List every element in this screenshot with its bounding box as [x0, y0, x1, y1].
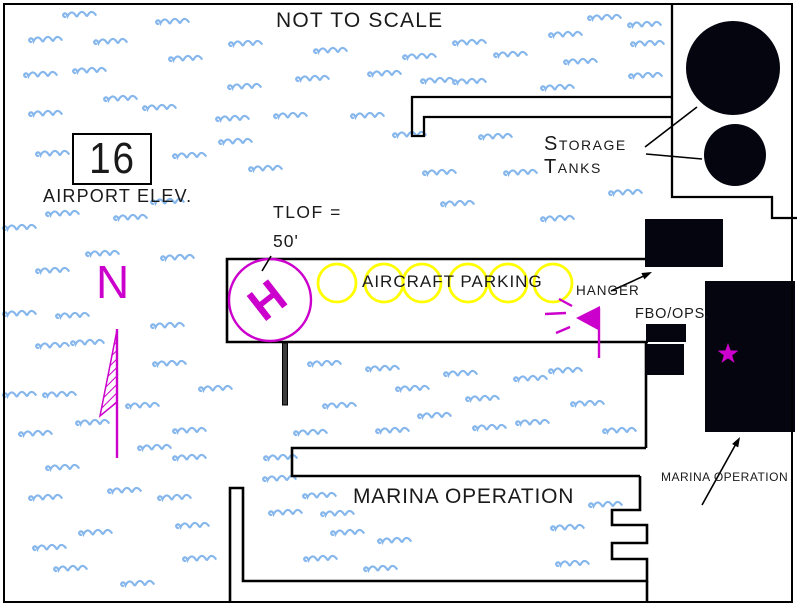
wave-icon	[216, 116, 249, 121]
wave-icon	[403, 54, 436, 59]
airport-elevation-box: 16	[72, 133, 152, 185]
wave-icon	[294, 430, 327, 435]
wave-icon	[603, 428, 636, 433]
wave-icon	[514, 376, 547, 381]
wave-icon	[73, 68, 106, 73]
wave-icon	[274, 113, 307, 118]
pier-piling-post	[283, 343, 288, 405]
wave-icon	[588, 15, 621, 20]
wave-icon	[19, 431, 52, 436]
wave-icon	[364, 566, 397, 571]
north-arrow	[100, 329, 117, 458]
heliport-site-diagram: { "title": "NOT TO SCALE", "airport": { …	[0, 0, 800, 610]
wave-icon	[323, 403, 356, 408]
wave-icon	[138, 445, 171, 450]
wave-icon	[126, 403, 159, 408]
wave-icon	[444, 371, 477, 376]
storage-tank-small	[704, 124, 766, 186]
wave-icon	[219, 139, 252, 144]
marina-arrowhead	[732, 437, 740, 447]
wave-icon	[453, 40, 486, 45]
wave-icon	[156, 19, 189, 24]
wave-icon	[504, 170, 537, 175]
wave-icon	[541, 85, 574, 90]
wave-icon	[108, 488, 141, 493]
wave-icon	[46, 465, 79, 470]
wave-icon	[229, 41, 262, 46]
wave-icon	[564, 59, 597, 64]
wave-icon	[29, 37, 62, 42]
wave-icon	[76, 420, 109, 425]
wave-icon	[173, 455, 206, 460]
wave-icon	[331, 530, 364, 535]
wave-icon	[46, 211, 79, 216]
wave-icon	[479, 134, 512, 139]
marina-operation-building	[705, 281, 795, 432]
wave-icon	[173, 428, 206, 433]
wave-icon	[571, 401, 604, 406]
wave-icon	[29, 495, 62, 500]
wave-icon	[494, 52, 527, 57]
wave-icon	[376, 428, 409, 433]
wave-icon	[36, 151, 69, 156]
wave-icon	[556, 561, 589, 566]
wave-icon	[79, 530, 112, 535]
wave-icon	[366, 366, 399, 371]
wave-icon	[631, 41, 664, 46]
wave-icon	[29, 111, 62, 116]
wave-icon	[453, 79, 486, 84]
tlof-label-line2: 50'	[273, 231, 299, 251]
wave-icon	[173, 153, 206, 158]
wave-icon	[549, 32, 582, 37]
marina-operation-label: MARINA OPERATION	[353, 485, 574, 509]
hanger-arrowhead	[641, 272, 652, 279]
wave-icon	[551, 525, 584, 530]
airport-elevation-value: 16	[89, 134, 136, 185]
hanger-label: HANGER	[576, 283, 640, 299]
wave-icon	[3, 225, 36, 230]
storage-label-line1: Storage	[544, 133, 627, 156]
wave-icon	[228, 84, 261, 89]
wave-icon	[396, 386, 429, 391]
wave-icon	[161, 255, 194, 260]
wave-icon	[114, 215, 147, 220]
storage-leader-small	[646, 154, 702, 159]
wave-icon	[421, 78, 454, 83]
wave-icon	[43, 392, 76, 397]
wave-icon	[151, 323, 184, 328]
tlof-label-line1: TLOF =	[273, 202, 342, 222]
jetty-breakwater	[412, 97, 673, 136]
fbo-ops-label: FBO/OPS.	[635, 306, 710, 323]
fbo-building-lower	[646, 344, 684, 375]
wave-icon	[304, 556, 337, 561]
wave-icon	[609, 190, 642, 195]
wave-icon	[143, 105, 176, 110]
wave-icon	[169, 56, 202, 61]
wave-icon	[589, 502, 622, 507]
wave-icon	[3, 311, 36, 316]
wave-icon	[628, 22, 661, 27]
wave-icon	[351, 113, 384, 118]
wave-icon	[94, 39, 127, 44]
wave-icon	[368, 71, 401, 76]
storage-label-line2: Tanks	[544, 156, 627, 179]
wave-icon	[121, 581, 154, 586]
marina-building-label: MARINA OPERATION	[661, 471, 788, 485]
fbo-building-upper	[646, 324, 686, 342]
wave-icon	[629, 73, 662, 78]
hanger-building	[645, 219, 723, 267]
wave-icon	[303, 493, 336, 498]
wave-icon	[199, 386, 232, 391]
wave-icon	[321, 511, 354, 516]
wave-icon	[71, 340, 104, 345]
wave-icon	[269, 510, 302, 515]
wave-icon	[418, 413, 451, 418]
wave-icon	[158, 495, 191, 500]
wave-icon	[423, 170, 456, 175]
wave-icon	[63, 12, 96, 17]
wave-icon	[541, 216, 574, 221]
wave-icon	[36, 343, 69, 348]
wave-icon	[473, 425, 506, 430]
marina-pier-bar	[292, 448, 646, 476]
wave-icon	[441, 201, 474, 206]
wave-icon	[54, 566, 87, 571]
wave-icon	[308, 361, 341, 366]
storage-tanks-label: Storage Tanks	[544, 133, 627, 179]
wave-icon	[314, 48, 347, 53]
title-not-to-scale: NOT TO SCALE	[276, 9, 443, 33]
windsock-icon	[545, 299, 600, 358]
wave-icon	[378, 538, 411, 543]
wave-icon	[24, 72, 57, 77]
airport-elev-label: AIRPORT ELEV.	[43, 186, 192, 207]
wave-icon	[549, 368, 582, 373]
aircraft-parking-label: AIRCRAFT PARKING	[362, 272, 543, 292]
wave-icon	[3, 392, 36, 397]
wave-icon	[36, 268, 69, 273]
buildings	[645, 21, 795, 432]
wave-icon	[183, 556, 216, 561]
wave-icon	[516, 420, 549, 425]
wave-icon	[296, 76, 329, 81]
wave-icon	[249, 166, 282, 171]
wave-icon	[153, 361, 186, 366]
parking-spot-circle	[318, 264, 356, 302]
storage-tank-large	[686, 21, 780, 115]
wave-icon	[56, 313, 89, 318]
wave-icon	[466, 396, 499, 401]
north-label: N	[96, 256, 129, 309]
wave-icon	[33, 545, 66, 550]
wave-icon	[176, 523, 209, 528]
wave-icon	[104, 96, 137, 101]
